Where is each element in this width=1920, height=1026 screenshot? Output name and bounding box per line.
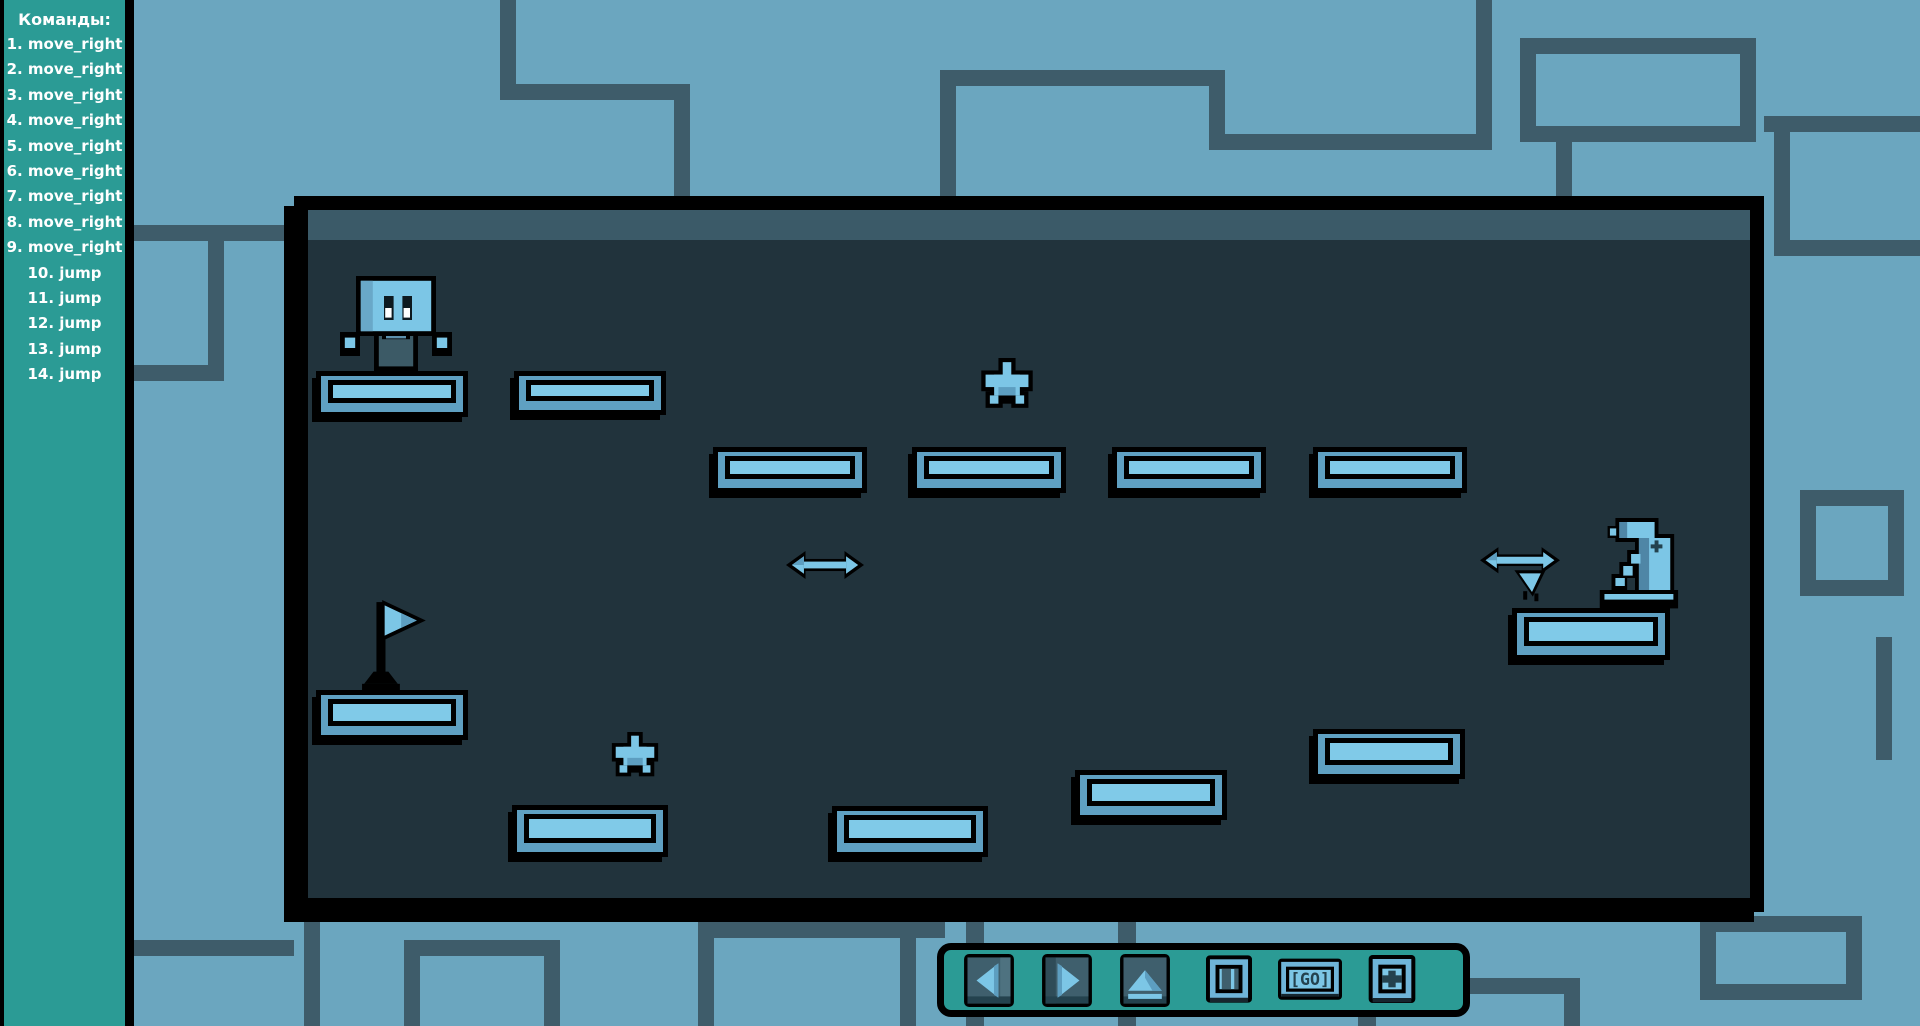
jump-button[interactable] <box>1120 954 1170 1007</box>
background-line <box>1476 0 1492 150</box>
commands-sidebar: Команды: 1. move_right2. move_right3. mo… <box>0 0 134 1026</box>
background-line <box>900 922 916 1026</box>
command-item: 2. move_right <box>4 57 125 82</box>
left-arrow-icon <box>964 954 1014 1007</box>
command-item: 13. jump <box>4 337 125 362</box>
background-line <box>940 70 1225 86</box>
background-line <box>304 922 320 1026</box>
background-line <box>208 225 224 381</box>
background-line <box>500 84 690 100</box>
background-line <box>1209 134 1492 150</box>
command-item: 10. jump <box>4 261 125 286</box>
background-line <box>1520 126 1756 142</box>
panel-header-band <box>308 210 1750 240</box>
action-toolbar: [GO] <box>937 943 1470 1017</box>
game-screen: Команды: 1. move_right2. move_right3. mo… <box>0 0 1920 1026</box>
background-line <box>1564 978 1580 1026</box>
commands-title: Команды: <box>4 8 125 32</box>
stop-button[interactable] <box>1206 955 1252 1005</box>
background-line <box>404 940 560 956</box>
jump-arch-icon <box>1120 954 1170 1007</box>
background-line <box>404 940 420 1026</box>
background-line <box>1556 142 1572 196</box>
background-line <box>1700 984 1862 1000</box>
background-line <box>1520 38 1756 54</box>
plus-icon <box>1368 955 1416 1005</box>
background-line <box>674 84 690 196</box>
command-item: 4. move_right <box>4 108 125 133</box>
command-item: 11. jump <box>4 286 125 311</box>
right-arrow-icon <box>1042 954 1092 1007</box>
level-panel <box>294 196 1764 912</box>
background-line <box>1700 916 1862 932</box>
background-line <box>698 922 714 1026</box>
background-line <box>544 940 560 1026</box>
background-line <box>1700 916 1716 1000</box>
command-item: 8. move_right <box>4 210 125 235</box>
background-line <box>1888 490 1904 596</box>
stop-icon <box>1206 955 1252 1005</box>
background-line <box>1800 490 1816 596</box>
background-line <box>1520 38 1536 142</box>
background-line <box>1846 916 1862 1000</box>
command-item: 5. move_right <box>4 134 125 159</box>
command-item: 1. move_right <box>4 32 125 57</box>
go-button-label: [GO] <box>1290 970 1330 989</box>
go-button[interactable]: [GO] <box>1278 957 1342 1003</box>
go-icon: [GO] <box>1278 957 1342 1003</box>
background-line <box>1774 116 1790 256</box>
background-line <box>1740 38 1756 142</box>
background-line <box>940 70 956 196</box>
background-line <box>126 940 294 956</box>
command-item: 6. move_right <box>4 159 125 184</box>
command-list: 1. move_right2. move_right3. move_right4… <box>4 32 125 388</box>
background-line <box>1876 637 1892 760</box>
background-line <box>1774 240 1920 256</box>
move-left-button[interactable] <box>964 954 1014 1007</box>
command-item: 9. move_right <box>4 235 125 260</box>
background-line <box>126 365 224 381</box>
command-item: 3. move_right <box>4 83 125 108</box>
command-item: 12. jump <box>4 311 125 336</box>
command-item: 14. jump <box>4 362 125 387</box>
move-right-button[interactable] <box>1042 954 1092 1007</box>
add-button[interactable] <box>1368 955 1416 1005</box>
command-item: 7. move_right <box>4 184 125 209</box>
